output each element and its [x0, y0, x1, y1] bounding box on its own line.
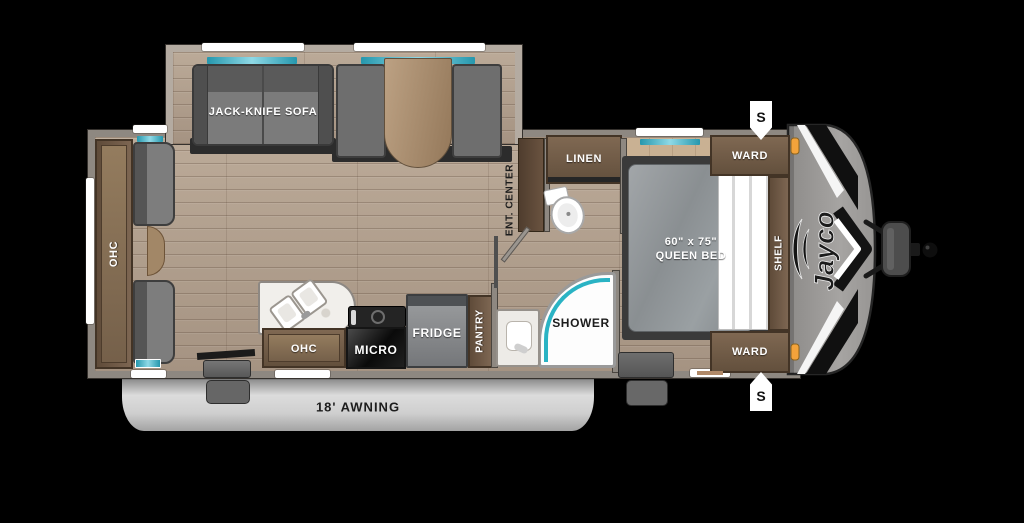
- rear-chair-bottom: [133, 280, 175, 364]
- bed-type-text: QUEEN BED: [656, 249, 727, 263]
- sofa-armrest-left: [194, 66, 208, 144]
- wardrobe-bottom-label: WARD: [732, 346, 768, 358]
- clearance-light-bottom: [791, 344, 799, 360]
- dinette-table: [384, 58, 452, 168]
- bottom-left-window-glass: [135, 359, 161, 368]
- bath-pocket-door: [494, 236, 498, 288]
- bottom-kitchen-window: [275, 370, 330, 378]
- sink-basin-well: [298, 286, 319, 307]
- stove-handle: [351, 310, 356, 325]
- shelf-label: SHELF: [774, 235, 785, 271]
- propane-tank: [882, 222, 910, 276]
- ent-center-cabinet: [518, 138, 544, 232]
- bed-size-text: 60" x 75": [656, 235, 727, 249]
- awning-label: 18' AWNING: [316, 400, 400, 415]
- sofa-cushion-divider: [262, 66, 264, 144]
- dinette-bench-right: [452, 64, 502, 158]
- slide-window-right: [354, 43, 485, 51]
- rear-wall-window: [86, 178, 94, 324]
- linen-label: LINEN: [566, 153, 602, 165]
- slide-window-left: [202, 43, 304, 51]
- hitch-ball: [923, 243, 938, 258]
- bedroom-top-window-glass: [640, 139, 700, 145]
- ent-center-label: ENT. CENTER: [505, 164, 516, 236]
- kitchen-ohc-label: OHC: [291, 343, 317, 355]
- shower-label: SHOWER: [552, 316, 610, 330]
- bottom-left-window: [131, 370, 166, 378]
- speaker-marker-bottom-text: S: [756, 388, 765, 404]
- stove-burner: [371, 310, 385, 324]
- microwave-label: MICRO: [355, 343, 398, 357]
- clearance-light-top: [791, 138, 799, 154]
- rear-chair-top: [133, 142, 175, 226]
- bed-label: 60" x 75" QUEEN BED: [656, 235, 727, 263]
- dinette-bench-left: [336, 64, 386, 158]
- front-cap: Jayco: [784, 118, 950, 382]
- bedroom-top-window: [636, 128, 703, 136]
- jack-knife-sofa: [192, 64, 334, 146]
- propane-highlight: [887, 228, 894, 270]
- slide-window-left-glass: [207, 57, 297, 64]
- pantry-label: PANTRY: [475, 309, 486, 353]
- fridge-label: FRIDGE: [413, 326, 462, 340]
- bedroom-bottom-window-shade: [697, 371, 723, 375]
- sofa-armrest-right: [318, 66, 332, 144]
- hitch-ball-highlight: [926, 246, 930, 250]
- bedroom-entry-step-2: [626, 380, 668, 406]
- wardrobe-top-label: WARD: [732, 150, 768, 162]
- main-entry-step-2: [206, 380, 250, 404]
- main-entry-step-1: [203, 360, 251, 378]
- floorplan-stage: 18' AWNING Jayco: [0, 0, 1024, 523]
- top-left-window-glass: [137, 136, 163, 142]
- speaker-marker-top-text: S: [756, 109, 765, 125]
- sink-basin-well: [277, 302, 298, 323]
- stove-cooktop: [348, 306, 406, 328]
- bedroom-entry-step-1: [618, 352, 674, 378]
- rear-ohc-label: OHC: [108, 241, 120, 267]
- top-left-window: [133, 125, 167, 133]
- sofa-label: JACK-KNIFE SOFA: [209, 106, 318, 118]
- jayco-logo-text: Jayco: [808, 211, 839, 290]
- bath-sink: [496, 309, 540, 367]
